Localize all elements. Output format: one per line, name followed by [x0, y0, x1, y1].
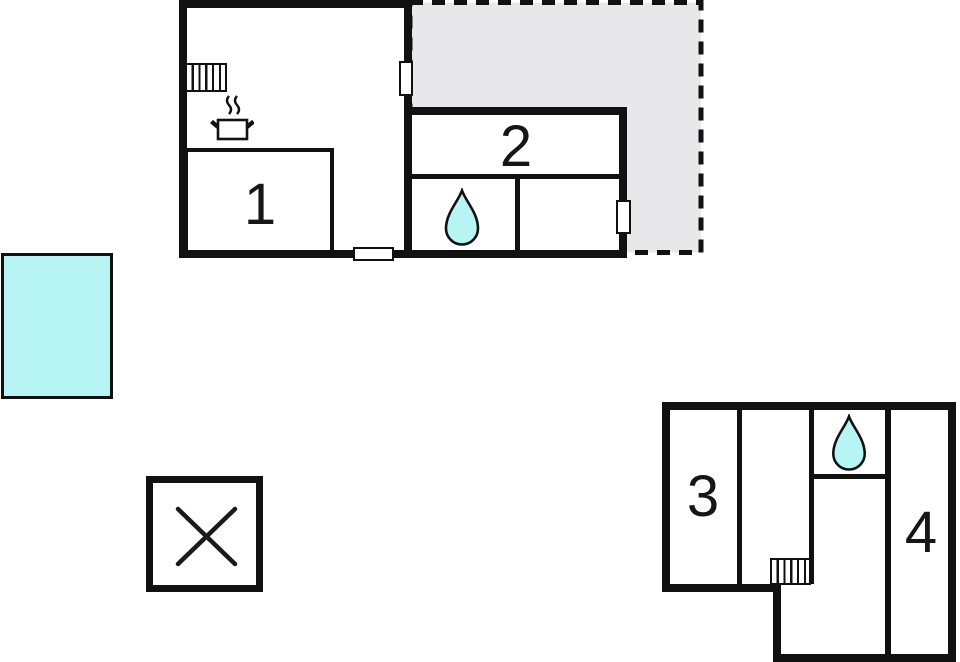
- annex-wall-step: [773, 584, 781, 662]
- room-1-label: 1: [244, 176, 276, 234]
- stove-pot-icon: [210, 94, 254, 142]
- annex-wall-right: [948, 402, 956, 662]
- annex-wall-bottom-left: [662, 584, 781, 592]
- door-room2-right: [616, 200, 631, 234]
- door-main-right: [399, 61, 413, 96]
- room-3-right-wall: [737, 410, 742, 584]
- door-main-bottom: [353, 247, 394, 261]
- annex-wall-bottom: [773, 654, 956, 662]
- shed-x-icon: [153, 483, 256, 585]
- room-3-label: 3: [687, 468, 719, 526]
- water-drop-icon: [444, 188, 480, 246]
- pool: [1, 253, 113, 399]
- room-2-inner-wall-vertical: [515, 176, 520, 258]
- room-4-left-wall: [885, 410, 891, 654]
- water-drop-icon: [831, 414, 867, 471]
- room-4-label: 4: [905, 504, 937, 562]
- radiator-icon: [770, 558, 811, 585]
- annex-wall-top: [662, 402, 956, 410]
- annex-wc-bottom-wall: [814, 474, 885, 479]
- floor-plan: 1 2 3 4: [0, 0, 960, 662]
- annex-wall-left: [662, 402, 670, 592]
- room-2-label: 2: [500, 118, 532, 176]
- radiator-icon: [185, 63, 227, 92]
- shed: [146, 476, 263, 592]
- annex-fill-lower: [773, 584, 956, 662]
